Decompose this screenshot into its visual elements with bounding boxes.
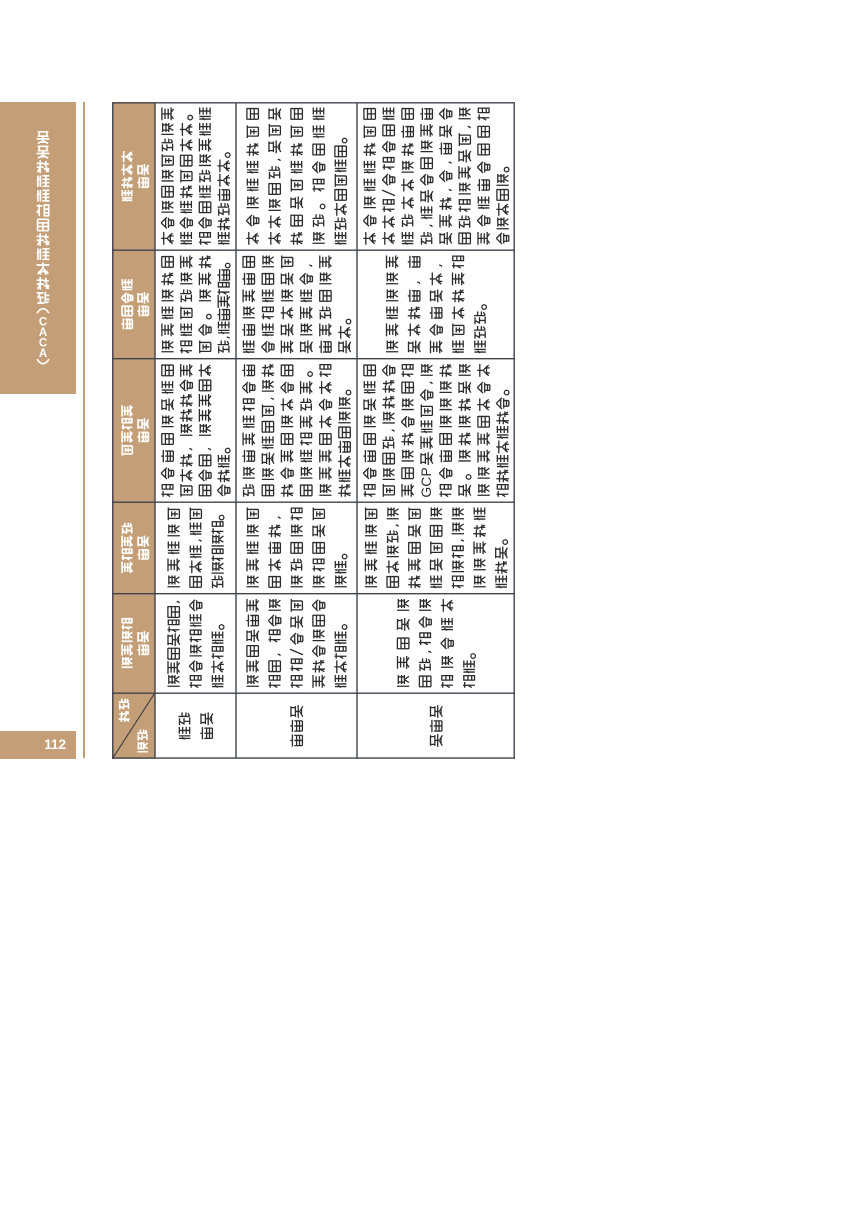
svg-text:GCP: GCP: [418, 467, 434, 497]
svg-text:A: A: [39, 348, 47, 360]
